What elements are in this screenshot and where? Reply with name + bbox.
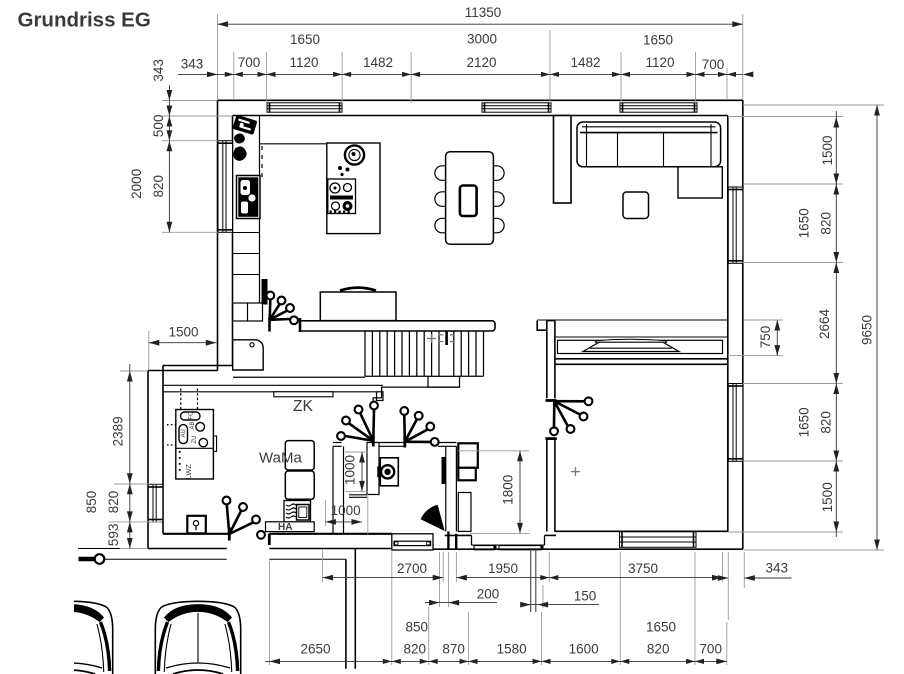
svg-text:1650: 1650 xyxy=(643,33,673,48)
svg-text:LWZ: LWZ xyxy=(184,464,193,480)
svg-text:2664: 2664 xyxy=(817,308,832,339)
svg-text:700: 700 xyxy=(702,57,725,72)
svg-text:11350: 11350 xyxy=(465,5,502,20)
svg-text:2389: 2389 xyxy=(110,416,125,446)
svg-text:1500: 1500 xyxy=(820,135,835,165)
svg-text:200: 200 xyxy=(477,587,500,602)
svg-text:HA: HA xyxy=(278,522,292,533)
svg-text:1650: 1650 xyxy=(796,407,811,437)
svg-text:9650: 9650 xyxy=(859,315,874,345)
svg-text:593: 593 xyxy=(106,524,121,547)
svg-text:2120: 2120 xyxy=(466,55,496,70)
svg-text:1500: 1500 xyxy=(168,325,198,340)
svg-text:870: 870 xyxy=(442,642,465,657)
svg-text:150: 150 xyxy=(574,589,597,604)
svg-text:2000: 2000 xyxy=(129,169,144,199)
svg-text:1650: 1650 xyxy=(290,32,320,47)
svg-text:850: 850 xyxy=(406,620,429,635)
svg-text:1800: 1800 xyxy=(500,475,515,505)
svg-text:500: 500 xyxy=(151,115,166,138)
svg-text:1482: 1482 xyxy=(363,55,393,70)
svg-text:3000: 3000 xyxy=(467,32,497,47)
svg-text:820: 820 xyxy=(647,642,670,657)
svg-text:1580: 1580 xyxy=(497,642,527,657)
svg-text:343: 343 xyxy=(766,561,789,576)
svg-text:343: 343 xyxy=(181,57,204,72)
svg-text:FO: FO xyxy=(189,411,195,420)
svg-text:1650: 1650 xyxy=(796,208,811,238)
svg-text:820: 820 xyxy=(819,411,834,434)
svg-text:1950: 1950 xyxy=(488,561,518,576)
svg-text:820: 820 xyxy=(404,642,427,657)
svg-text:343: 343 xyxy=(151,59,166,82)
svg-text:1120: 1120 xyxy=(645,55,674,70)
svg-text:750: 750 xyxy=(758,326,773,349)
svg-text:1600: 1600 xyxy=(569,642,599,657)
svg-text:1000: 1000 xyxy=(331,503,361,518)
svg-text:820: 820 xyxy=(819,212,834,235)
svg-text:Grundriss EG: Grundriss EG xyxy=(18,9,151,32)
svg-text:AU: AU xyxy=(181,429,187,437)
svg-text:820: 820 xyxy=(151,175,166,198)
svg-text:1120: 1120 xyxy=(289,55,318,70)
svg-text:850: 850 xyxy=(84,491,99,514)
svg-text:820: 820 xyxy=(106,491,121,514)
svg-text:AB: AB xyxy=(190,421,196,429)
svg-text:ZU: ZU xyxy=(192,436,198,444)
svg-text:1650: 1650 xyxy=(646,620,676,635)
svg-text:3750: 3750 xyxy=(628,561,658,576)
svg-text:2650: 2650 xyxy=(300,642,330,657)
svg-text:1500: 1500 xyxy=(820,482,835,512)
svg-text:ZK: ZK xyxy=(293,398,313,415)
svg-text:1000: 1000 xyxy=(342,455,357,485)
svg-text:700: 700 xyxy=(699,642,722,657)
svg-text:700: 700 xyxy=(238,55,261,70)
svg-text:WaMa: WaMa xyxy=(259,450,302,467)
svg-text:2700: 2700 xyxy=(397,561,427,576)
svg-text:1482: 1482 xyxy=(570,55,600,70)
